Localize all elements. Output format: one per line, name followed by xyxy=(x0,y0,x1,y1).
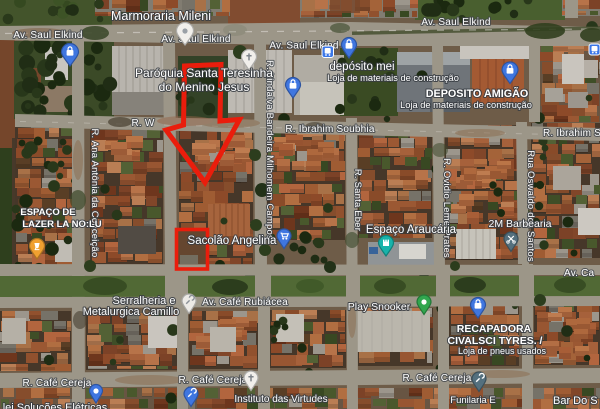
svg-text:Loja de materiais de construçã: Loja de materiais de construção xyxy=(327,73,459,83)
svg-text:do Menino Jesus: do Menino Jesus xyxy=(159,80,250,94)
svg-text:R. Santa Eber: R. Santa Eber xyxy=(352,169,363,231)
svg-text:Av. Saul Elkind: Av. Saul Elkind xyxy=(13,30,82,41)
svg-text:RECAPADORA: RECAPADORA xyxy=(457,323,532,335)
svg-text:Av. Saul Elkind: Av. Saul Elkind xyxy=(421,17,490,28)
svg-text:ESPAÇO DE: ESPAÇO DE xyxy=(20,207,75,218)
svg-text:lei Soluções Elétricas: lei Soluções Elétricas xyxy=(3,402,108,409)
svg-text:Loja de materiais de construçã: Loja de materiais de construção xyxy=(400,100,532,110)
svg-text:2M Barbearia: 2M Barbearia xyxy=(488,218,551,230)
svg-text:Espaço Araucária: Espaço Araucária xyxy=(366,224,457,236)
svg-text:Av. Café Rubiácea: Av. Café Rubiácea xyxy=(202,297,288,308)
svg-text:Play Snooker: Play Snooker xyxy=(348,301,411,313)
svg-text:Av. Saul Elkind: Av. Saul Elkind xyxy=(161,34,230,45)
svg-text:depósito mei: depósito mei xyxy=(329,61,394,73)
svg-text:LAZER LA NO:LU: LAZER LA NO:LU xyxy=(22,219,101,230)
svg-text:DEPOSITO AMIGÃO: DEPOSITO AMIGÃO xyxy=(426,87,529,100)
svg-text:Sacolão Angelina: Sacolão Angelina xyxy=(188,235,277,247)
svg-text:R. Café Cereja: R. Café Cereja xyxy=(179,375,248,386)
svg-text:R. Ibrahim Soubhia: R. Ibrahim Soubhia xyxy=(285,124,374,135)
svg-text:R. Café Cereja: R. Café Cereja xyxy=(23,378,92,389)
svg-text:R. Lindalva Bandeira Milhomem: R. Lindalva Bandeira Milhomem Campos xyxy=(264,60,275,240)
svg-text:R. Café Cereja: R. Café Cereja xyxy=(403,373,472,384)
svg-text:Bar Do S: Bar Do S xyxy=(553,395,598,407)
svg-text:Funilaria E: Funilaria E xyxy=(450,395,495,406)
svg-text:R. Ibrahim S: R. Ibrahim S xyxy=(543,128,600,139)
svg-text:Loja de pneus usados: Loja de pneus usados xyxy=(458,346,547,356)
svg-text:R. Ana Antônia da Conceição: R. Ana Antônia da Conceição xyxy=(89,129,100,258)
svg-text:Rua Oswaldo dos Santos: Rua Oswaldo dos Santos xyxy=(525,150,536,262)
svg-text:Metalurgica Camillo: Metalurgica Camillo xyxy=(83,306,180,318)
svg-text:R. Ovidio Leme Prates: R. Ovidio Leme Prates xyxy=(441,158,452,258)
svg-text:R. W: R. W xyxy=(131,118,154,129)
svg-text:Instituto das Virtudes: Instituto das Virtudes xyxy=(234,394,327,405)
svg-text:Marmoraria Mileni: Marmoraria Mileni xyxy=(111,9,211,23)
svg-text:Paróquia Santa Teresinha: Paróquia Santa Teresinha xyxy=(135,66,273,80)
svg-text:Av. Ca: Av. Ca xyxy=(564,268,595,279)
